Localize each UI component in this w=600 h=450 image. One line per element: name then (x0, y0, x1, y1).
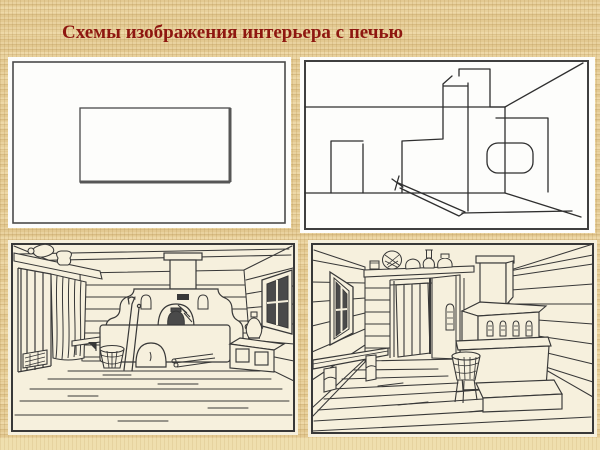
bench-diagonal (392, 176, 465, 216)
slide-background: { "slide": { "title": "Схемы изображения… (0, 0, 600, 450)
panel-scheme-angular (300, 57, 595, 233)
panel-scheme-frontal (8, 57, 291, 228)
door-drawing (390, 275, 464, 359)
perspective-diagonals (462, 63, 583, 217)
room-frame-rect (13, 62, 285, 223)
backwall-lines (305, 107, 505, 193)
stove-outline (402, 69, 505, 211)
curtain-drawing (51, 274, 86, 360)
bucket-drawing (100, 346, 124, 369)
bottom-strip (0, 438, 600, 450)
izba-frontal-drawing (8, 240, 298, 435)
panel-drawing-frontal (8, 240, 298, 435)
panel-drawing-angular (308, 240, 597, 437)
izba-angular-drawing (308, 240, 597, 437)
perspective-scheme-drawing (300, 57, 595, 233)
window-drawing (262, 270, 292, 334)
slide-title: Схемы изображения интерьера с печью (62, 22, 562, 44)
stove-side-rounded-rect (487, 143, 533, 173)
backwall-rect-shadow (80, 108, 230, 182)
backwall-rect (80, 108, 230, 182)
frontal-scheme-drawing (8, 57, 291, 228)
door-outline (331, 141, 363, 193)
rightwall-box (496, 118, 548, 192)
